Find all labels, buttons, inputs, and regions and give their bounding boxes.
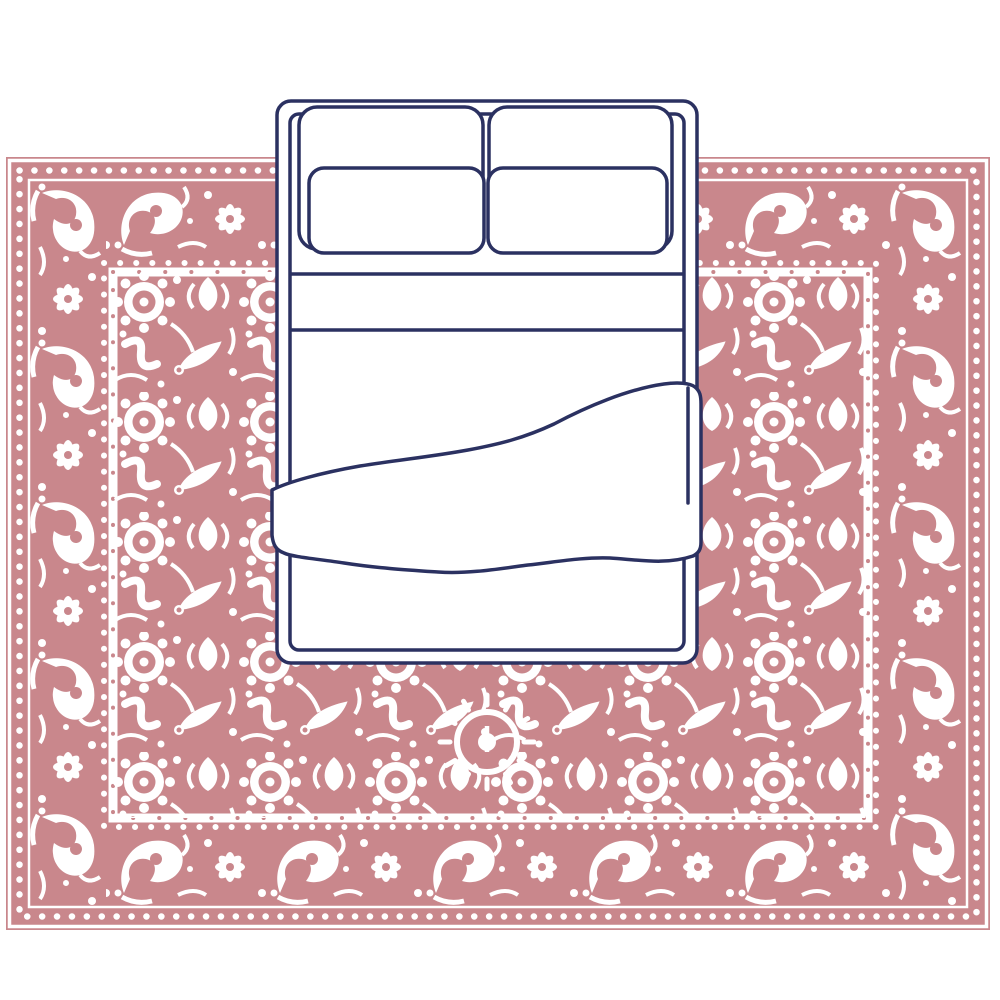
rug-border-left (30, 181, 106, 905)
room-floor: Top-down illustration of a double bed wi… (0, 0, 1000, 1000)
front-pillow-left (309, 168, 484, 253)
double-bed: Double bed with pillows and duvet (top v… (272, 101, 701, 663)
front-pillow-right (488, 168, 667, 253)
bed-on-rug-illustration: Top-down illustration of a double bed wi… (0, 0, 1000, 1000)
rug-border-right (890, 181, 966, 905)
rug-border-bottom (106, 829, 890, 905)
